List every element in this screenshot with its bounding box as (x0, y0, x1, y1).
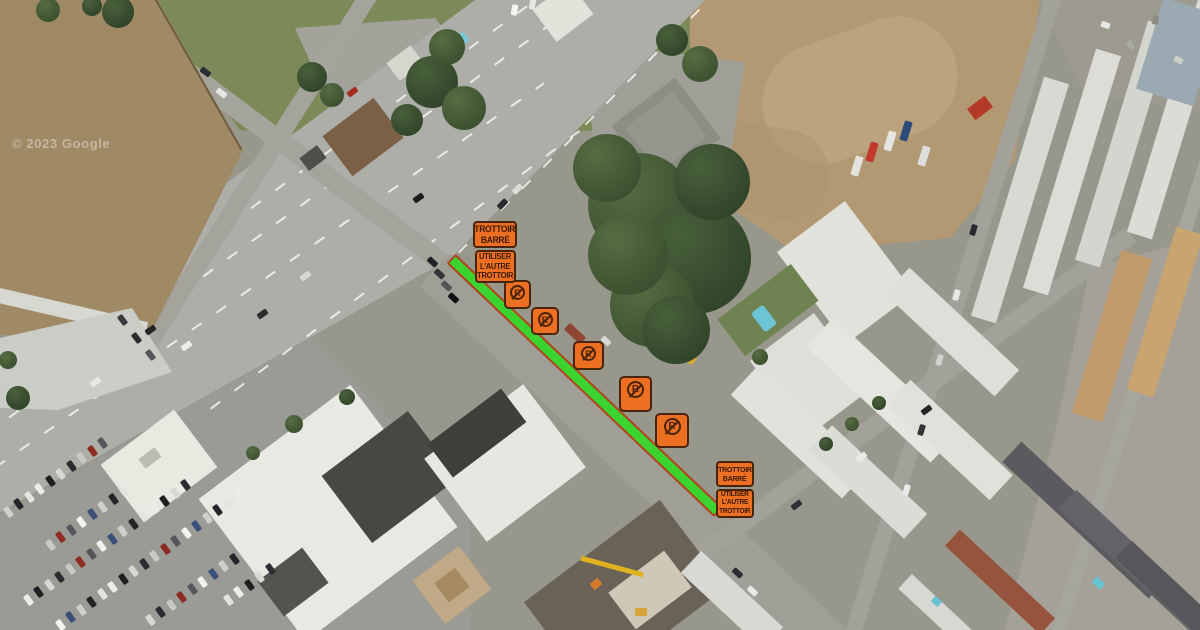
satellite-map: © 2023 Google R R R R R TROTTOIR BARRÉ U… (0, 0, 1200, 630)
map-tree (442, 86, 486, 130)
map-car (790, 499, 802, 510)
map-tree (246, 446, 260, 460)
map-tree (642, 296, 710, 364)
no-parking-icon: R (664, 418, 681, 435)
map-car (510, 4, 518, 16)
satellite-imagery (0, 0, 1200, 630)
no-parking-marker: R (531, 307, 559, 335)
map-tree (320, 83, 344, 107)
sign-utiliser-autre-trottoir-north: UTILISER L'AUTRE TROTTOIR (475, 250, 516, 283)
no-parking-icon: R (581, 346, 596, 361)
imagery-watermark: © 2023 Google (12, 136, 110, 151)
no-parking-marker: R (573, 341, 604, 370)
map-debris (1151, 15, 1158, 25)
map-tree (674, 144, 750, 220)
no-parking-icon: R (510, 285, 525, 300)
map-tree (429, 29, 465, 65)
map-tree (819, 437, 833, 451)
map-tree (6, 386, 30, 410)
map-construction-site (635, 608, 647, 616)
map-tree (573, 134, 641, 202)
map-tree (752, 349, 768, 365)
sign-utiliser-autre-trottoir-south: UTILISER L'AUTRE TROTTOIR (716, 489, 754, 518)
map-tree (588, 215, 668, 295)
no-parking-marker: R (504, 280, 531, 309)
no-parking-marker: R (655, 413, 689, 448)
map-tree (339, 389, 355, 405)
no-parking-icon: R (627, 381, 644, 398)
map-tree (682, 46, 718, 82)
map-tree (845, 417, 859, 431)
map-tree (285, 415, 303, 433)
sign-trottoir-barre-north: TROTTOIR BARRÉ (473, 221, 517, 248)
map-tree (391, 104, 423, 136)
map-tree (872, 396, 886, 410)
map-tree (656, 24, 688, 56)
sign-trottoir-barre-south: TROTTOIR BARRÉ (716, 461, 754, 487)
map-car (528, 0, 536, 10)
no-parking-marker: R (619, 376, 652, 412)
no-parking-icon: R (538, 312, 553, 327)
